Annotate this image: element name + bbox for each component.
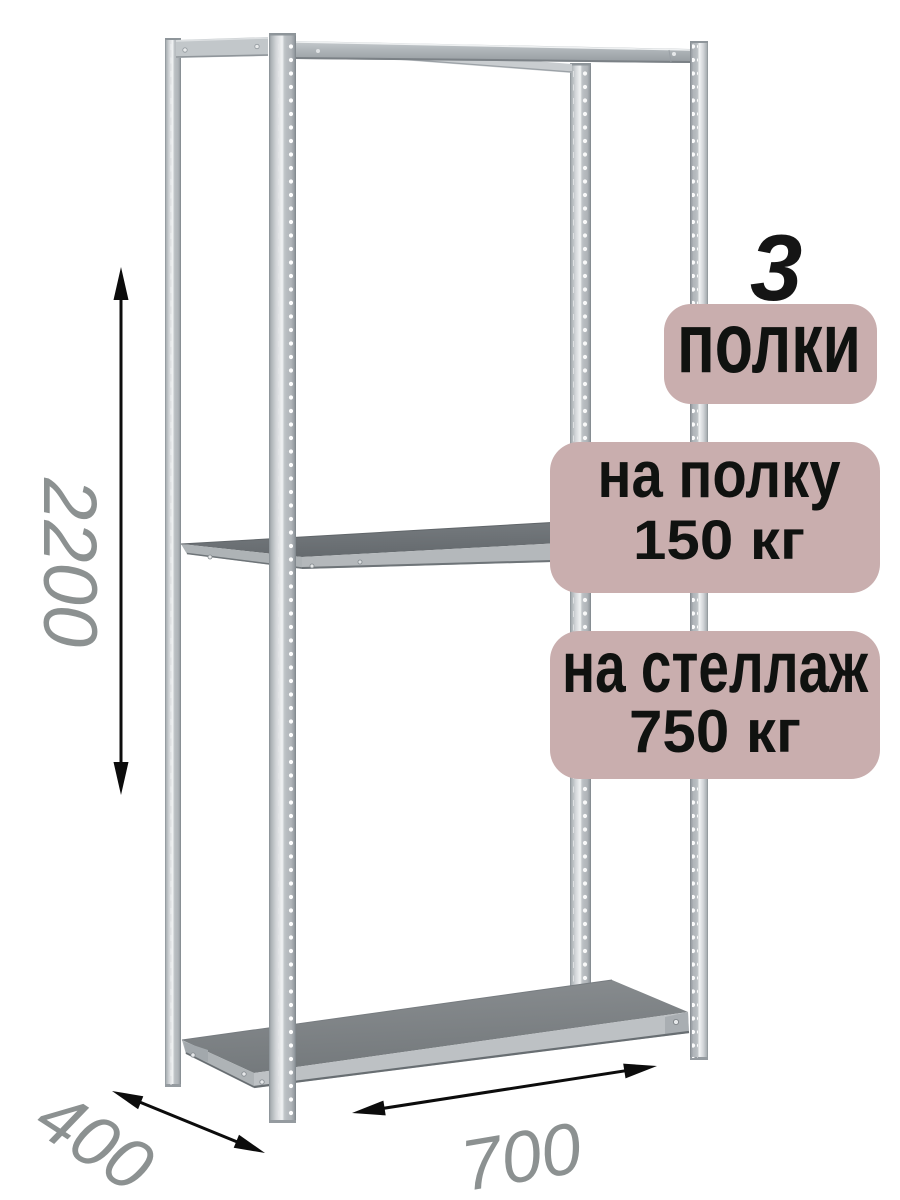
svg-text:750 кг: 750 кг: [629, 698, 801, 765]
svg-text:2200: 2200: [27, 477, 112, 647]
svg-text:150 кг: 150 кг: [633, 508, 805, 571]
svg-text:на полку: на полку: [598, 437, 841, 511]
svg-text:полки: полки: [677, 296, 861, 391]
svg-text:на стеллаж: на стеллаж: [562, 628, 869, 708]
